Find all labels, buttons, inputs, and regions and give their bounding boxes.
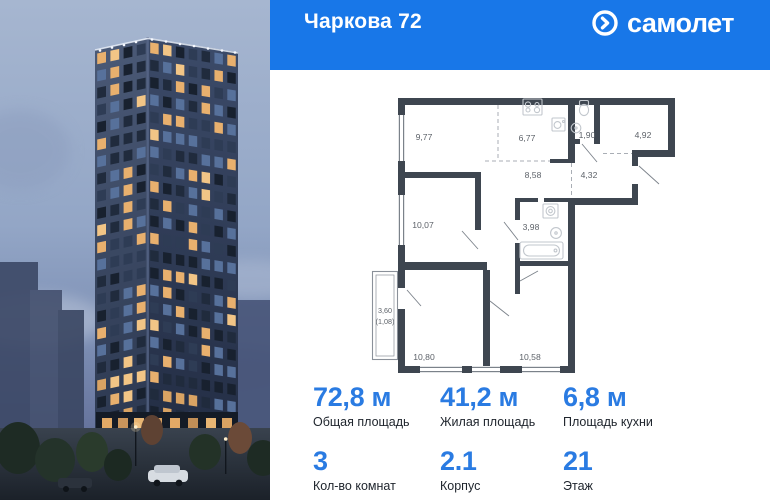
info-panel: Чаркова 72 самолет (270, 0, 770, 500)
stat-label: Жилая площадь (440, 415, 563, 430)
stat-value: 21 (563, 447, 693, 476)
plan-dashed-dividers (485, 105, 632, 198)
brand-name: самолет (627, 9, 734, 37)
stat-label: Кол-во комнат (313, 479, 440, 494)
room-area-label: 6,77 (519, 133, 536, 143)
balcony-outline (373, 272, 398, 360)
stat-label: Общая площадь (313, 415, 440, 430)
room-area-label: 1,90 (579, 130, 596, 140)
listing-card: Чаркова 72 самолет (0, 0, 770, 500)
header: Чаркова 72 самолет (270, 0, 770, 70)
stat-value: 41,2 м (440, 383, 563, 412)
room-area-label: 10,07 (412, 220, 434, 230)
room-area-label: 9,77 (416, 132, 433, 142)
stat-building-number: 2.1 Корпус (440, 447, 563, 494)
stat-value: 3 (313, 447, 440, 476)
stat-total-area: 72,8 м Общая площадь (313, 383, 440, 430)
apartment-stats: 72,8 м Общая площадь 41,2 м Жилая площад… (313, 383, 693, 494)
stat-label: Площадь кухни (563, 415, 693, 430)
plan-windows (398, 115, 560, 373)
washbasin-icon (551, 228, 562, 239)
washer-icon (543, 204, 558, 218)
room-area-label: 4,32 (581, 170, 598, 180)
room-area-label: 3,98 (523, 222, 540, 232)
floor-plan: 9,776,771,904,928,584,3210,073,9810,8010… (360, 85, 690, 385)
room-area-label: 4,92 (635, 130, 652, 140)
room-area-label: 8,58 (525, 170, 542, 180)
brand-logo[interactable]: самолет (591, 8, 734, 38)
stat-living-area: 41,2 м Жилая площадь (440, 383, 563, 430)
balcony-area-label: (1,08) (376, 317, 395, 326)
building-photo (0, 0, 270, 500)
stat-rooms-count: 3 Кол-во комнат (313, 447, 440, 494)
page-title: Чаркова 72 (304, 8, 422, 36)
arrow-circle-icon (591, 9, 619, 37)
bathtub-icon (520, 242, 563, 259)
stat-floor-number: 21 Этаж (563, 447, 693, 494)
tower (95, 37, 238, 452)
building-illustration (0, 0, 270, 500)
kitchen-sink-icon (552, 118, 565, 131)
stat-value: 2.1 (440, 447, 563, 476)
room-area-label: 10,80 (413, 352, 435, 362)
stat-label: Этаж (563, 479, 693, 494)
room-area-label: 10,58 (519, 352, 541, 362)
room-area-labels: 9,776,771,904,928,584,3210,073,9810,8010… (376, 130, 652, 362)
stat-label: Корпус (440, 479, 563, 494)
stat-value: 72,8 м (313, 383, 440, 412)
plan-walls (398, 98, 675, 373)
stat-kitchen-area: 6,8 м Площадь кухни (563, 383, 693, 430)
balcony-area-label: 3,60 (378, 306, 392, 315)
stat-value: 6,8 м (563, 383, 693, 412)
